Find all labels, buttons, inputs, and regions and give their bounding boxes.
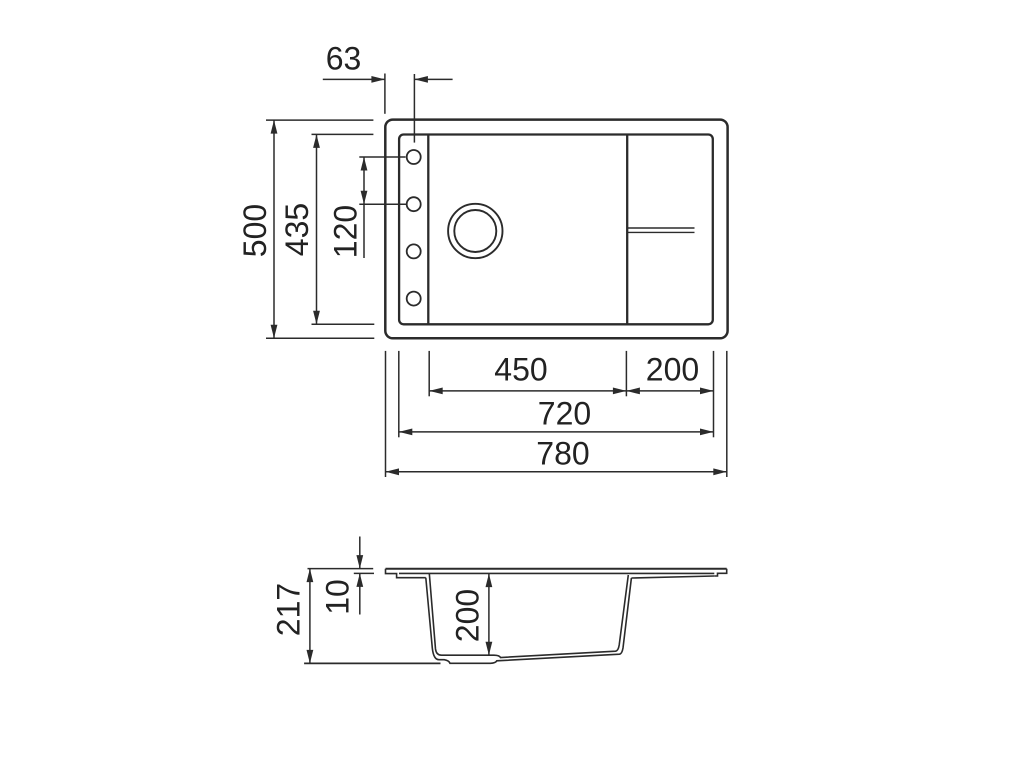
svg-text:720: 720 [538,395,591,431]
svg-text:217: 217 [271,583,307,636]
svg-text:120: 120 [327,205,363,258]
svg-text:450: 450 [494,352,547,388]
svg-text:500: 500 [237,204,273,257]
svg-text:780: 780 [536,435,589,471]
svg-text:200: 200 [450,589,486,642]
svg-text:63: 63 [326,41,362,77]
svg-text:10: 10 [319,579,355,615]
svg-text:435: 435 [279,203,315,256]
svg-text:200: 200 [646,352,699,388]
